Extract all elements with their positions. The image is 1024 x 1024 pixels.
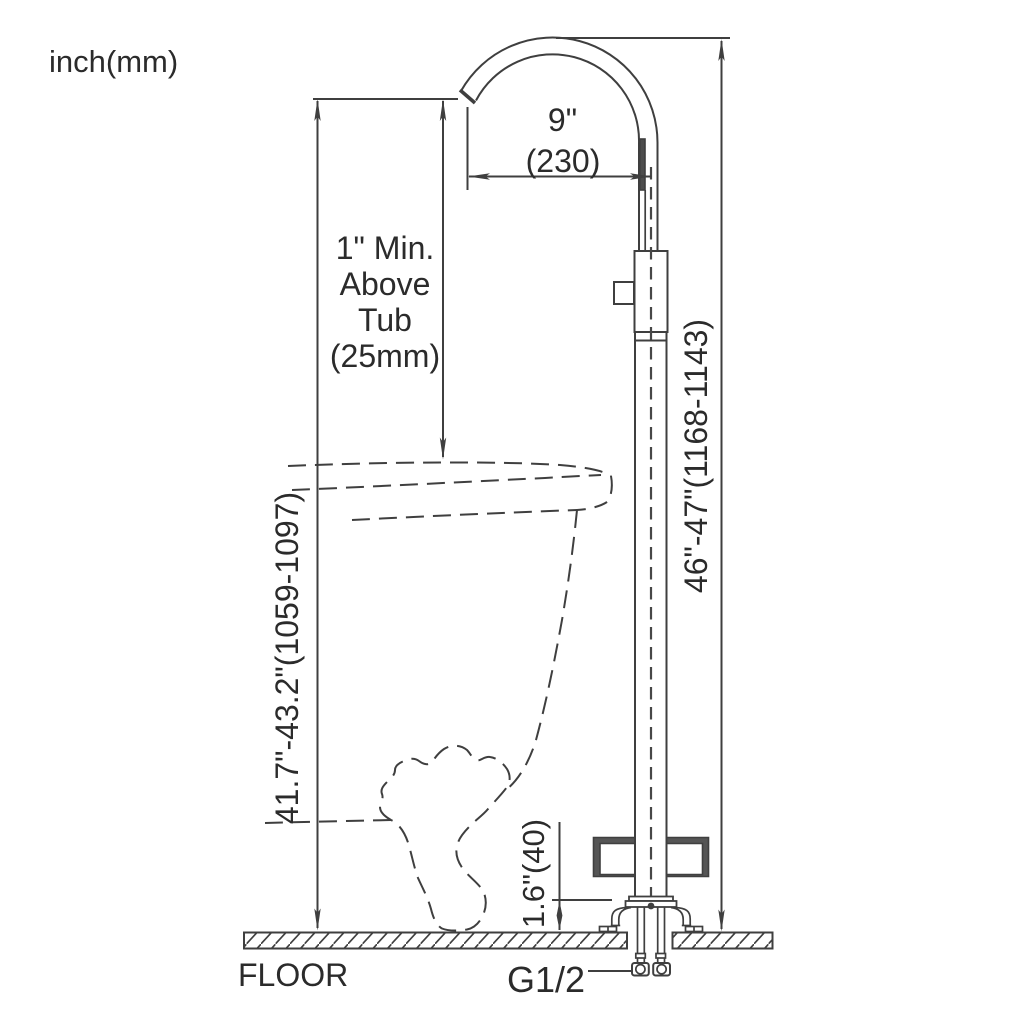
- svg-text:9": 9": [548, 102, 577, 138]
- svg-text:Tub: Tub: [358, 302, 412, 338]
- svg-text:1" Min.: 1" Min.: [336, 230, 435, 266]
- svg-text:46"-47"(1168-1143): 46"-47"(1168-1143): [678, 319, 714, 593]
- svg-text:41.7"-43.2"(1059-1097): 41.7"-43.2"(1059-1097): [269, 492, 305, 824]
- svg-text:1.6"(40): 1.6"(40): [516, 819, 551, 928]
- svg-text:G1/2: G1/2: [507, 959, 585, 1000]
- svg-text:FLOOR: FLOOR: [238, 957, 348, 993]
- svg-text:(25mm): (25mm): [330, 338, 440, 374]
- svg-text:Above: Above: [340, 266, 431, 302]
- svg-text:(230): (230): [526, 143, 601, 179]
- svg-text:inch(mm): inch(mm): [49, 44, 178, 79]
